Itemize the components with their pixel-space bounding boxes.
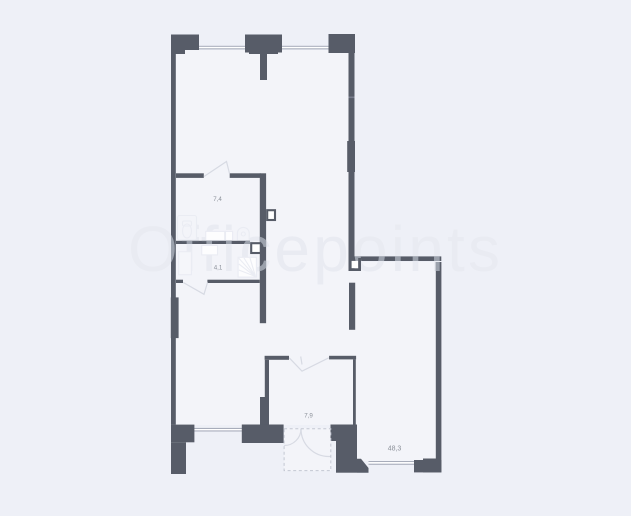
svg-text:7,4: 7,4 [213, 196, 222, 203]
svg-text:4,1: 4,1 [214, 265, 223, 272]
svg-text:7,9: 7,9 [304, 413, 313, 420]
svg-text:48,3: 48,3 [388, 446, 402, 453]
